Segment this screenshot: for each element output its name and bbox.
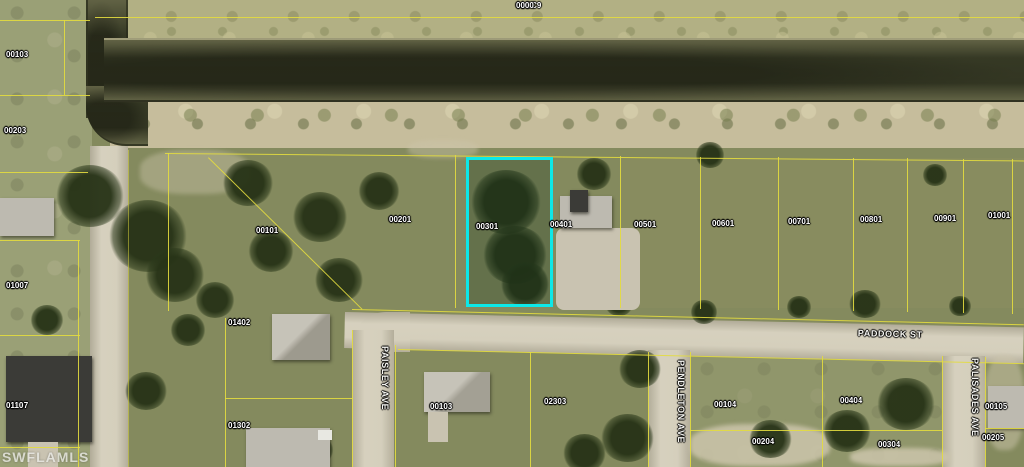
parcel-line: [822, 356, 823, 467]
parcel-lot: 0050: [634, 220, 652, 229]
parcel-lot: 0110: [6, 401, 23, 410]
tree: [922, 164, 948, 186]
parcel-line: [690, 352, 691, 467]
parcel-lot: 0000: [516, 1, 534, 10]
parcel-line: [778, 157, 779, 310]
tree: [314, 258, 364, 302]
parcel-lot: 0010: [256, 226, 274, 235]
tree: [600, 414, 655, 462]
parcel-lot: 0020: [4, 126, 22, 135]
parcel-line: [907, 158, 908, 312]
parcel-lot: 0010: [6, 50, 24, 59]
parcel-lot: 0020: [752, 437, 770, 446]
tree: [170, 314, 206, 346]
parcel-line: [690, 430, 942, 431]
parcel-line: [985, 357, 986, 467]
tree: [292, 192, 348, 242]
parcel-lot: 0100: [988, 211, 1006, 220]
parcel-lot: 0060: [712, 219, 730, 228]
tree: [690, 300, 718, 324]
parcel-lot: 0010: [714, 400, 732, 409]
tree: [30, 305, 64, 335]
aerial-map: 01GC90000 010930010 010930020 010970100 …: [0, 0, 1024, 467]
house-roof: [272, 314, 330, 360]
parcel-lot: 0070: [788, 217, 806, 226]
parcel-line: [0, 95, 90, 96]
house-roof: [0, 198, 54, 236]
parcel-line: [648, 352, 649, 467]
parcel-line: [455, 155, 456, 308]
parcel-lot: 0010: [985, 402, 1003, 411]
parcel-line: [620, 156, 621, 308]
parcel-lot: 0020: [982, 433, 1000, 442]
parcel-line: [225, 318, 226, 467]
parcel-line: [942, 356, 943, 467]
parcel-lot: 0040: [550, 220, 568, 229]
sand-patch: [850, 448, 950, 466]
canal-horizontal: [104, 38, 1024, 102]
parcel-line: [128, 150, 129, 467]
parcel-line: [95, 17, 1024, 18]
parcel-line: [64, 20, 65, 95]
street-label-pendleton: PENDLETON AVE: [676, 360, 686, 443]
parcel-line: [1012, 159, 1013, 314]
parcel-lot: 0100: [6, 281, 24, 290]
parcel-line: [225, 398, 353, 399]
parcel-lot: 0030: [878, 440, 896, 449]
parcel-lot: 0130: [228, 421, 246, 430]
tree: [876, 378, 936, 430]
street-label-paddock: PADDOCK ST: [858, 328, 923, 340]
tree: [562, 434, 607, 467]
tree: [124, 372, 168, 410]
parcel-line: [78, 240, 79, 467]
pool: [318, 430, 332, 440]
parcel-line: [853, 158, 854, 311]
parcel-line: [0, 240, 80, 241]
street-label-paisley: PAISLEY AVE: [380, 346, 390, 410]
parcel-lot: 0040: [840, 396, 858, 405]
canal-south-bank: [110, 98, 1024, 148]
highlighted-parcel-outline: [466, 157, 553, 307]
parcel-line: [0, 20, 90, 21]
parcel-lot: 0080: [860, 215, 878, 224]
parcel-line: [963, 159, 964, 313]
tree: [222, 160, 274, 206]
canal-north-bank: [95, 0, 1024, 40]
parcel-line: [0, 335, 80, 336]
parcel-lot: 0140: [228, 318, 246, 327]
parcel-line: [700, 157, 701, 309]
parcel-lot: 0010: [430, 402, 448, 411]
street-label-palisades: PALISADES AVE: [970, 358, 980, 437]
parcel-lot: 0090: [934, 214, 952, 223]
mls-watermark: SWFLAMLS: [2, 449, 89, 465]
tree: [948, 296, 972, 316]
driveway: [556, 228, 640, 310]
parcel-lot: 0020: [389, 215, 407, 224]
parcel-lot: 0030: [476, 222, 494, 231]
parcel-line: [168, 153, 169, 311]
tree: [786, 296, 812, 318]
tree: [576, 158, 612, 190]
parcel-line: [0, 172, 88, 173]
parcel-line: [352, 330, 353, 467]
parcel-lot: 0230: [544, 397, 562, 406]
parcel-line: [530, 352, 531, 467]
parcel-line: [395, 345, 396, 467]
driveway: [428, 412, 448, 442]
tree: [358, 172, 400, 210]
tree: [195, 282, 235, 318]
shed-roof: [570, 190, 588, 212]
parcel-line: [985, 428, 1024, 429]
